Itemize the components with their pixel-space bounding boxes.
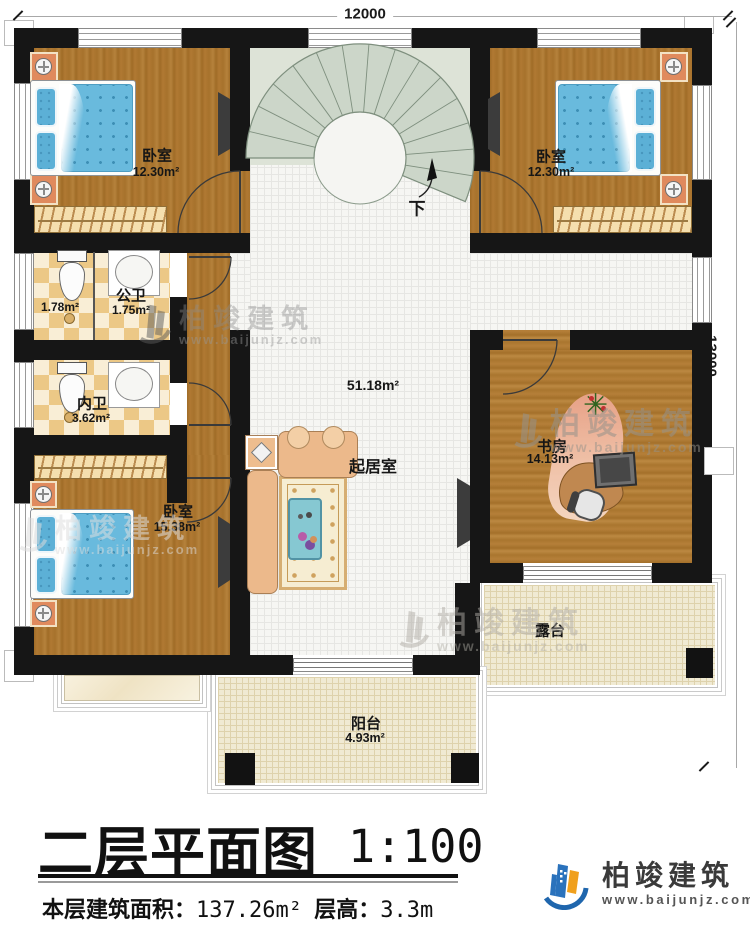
toilet-tank (57, 250, 87, 262)
wall (570, 330, 712, 350)
window (308, 28, 412, 48)
end-table (246, 436, 277, 469)
nightstand (30, 481, 57, 508)
tv-icon (218, 92, 230, 156)
window (537, 28, 641, 48)
column (451, 753, 479, 783)
sink-basin (115, 367, 153, 401)
door-threshold (470, 171, 490, 233)
tv-icon (488, 92, 500, 156)
room-label: 露台 (535, 620, 565, 641)
wall (413, 655, 480, 675)
wardrobe-rod (38, 220, 164, 222)
room-area: 14.13m² (527, 452, 574, 466)
wardrobe-rod (557, 220, 689, 222)
plan-scale: 1:100 (348, 820, 483, 873)
window (692, 257, 712, 323)
nightstand (30, 600, 57, 627)
wall (692, 48, 712, 85)
blanket-fold (606, 84, 632, 172)
nightstand (30, 52, 58, 82)
brand-name: 柏竣建筑 (602, 861, 750, 892)
lamp-icon (35, 605, 52, 622)
wall (14, 340, 187, 360)
wardrobe (553, 206, 692, 233)
computer-monitor-icon (593, 452, 637, 489)
balcony-sliding-door (293, 658, 413, 672)
column (225, 753, 255, 785)
room-area: 12.30m² (133, 165, 180, 179)
monitor-screen (599, 457, 631, 483)
vestibule-floor (187, 253, 230, 480)
nightstand (30, 174, 58, 205)
plant-berry (601, 406, 606, 411)
sofa-pillow (322, 426, 345, 449)
stair-area-background (250, 48, 470, 165)
dimension-tick (726, 17, 737, 28)
pillow (634, 131, 656, 171)
brand-logo-icon (540, 858, 592, 910)
pillow (35, 556, 57, 594)
corridor-floor (470, 253, 490, 330)
floor-area-value: 137.26m² (196, 898, 302, 923)
floor-plan-page: 12000 13000 (0, 0, 750, 930)
room-label: 卧室 (142, 145, 172, 166)
terrace-floor (484, 585, 715, 685)
floor-drain-icon (64, 313, 75, 324)
sink-icon (108, 362, 160, 408)
pillow (35, 131, 57, 171)
room-area: 15.38m² (154, 520, 201, 534)
bay-window (64, 675, 200, 701)
flower-icon (298, 532, 307, 541)
wall (230, 48, 250, 171)
brand-site: www.baijunjz.com (602, 892, 750, 907)
pillow (634, 87, 656, 127)
wall (170, 297, 187, 383)
window (14, 362, 34, 428)
pillow (35, 515, 57, 553)
title-underline-shadow (38, 881, 458, 883)
terrace-sliding-door (523, 566, 652, 580)
floor-area-label: 本层建筑面积： (42, 897, 196, 922)
dimension-width-label: 12000 (337, 6, 393, 23)
wall (641, 28, 712, 48)
right-dimension-line (736, 22, 737, 768)
sofa-pillow (287, 426, 310, 449)
ac-platform (704, 447, 734, 475)
wall (470, 233, 712, 253)
decor-dot (306, 512, 312, 518)
window (14, 253, 34, 330)
stairs-down-label: 下 (409, 195, 426, 220)
room-area: 1.75m² (112, 303, 150, 317)
plant-berry (589, 396, 594, 401)
balcony-floor (218, 677, 476, 783)
plant-icon: ✳ (583, 392, 608, 420)
floor-height-label: 层高： (314, 897, 380, 922)
room-area: 3.62m² (72, 411, 110, 425)
wall (14, 28, 78, 48)
decor-dot (298, 514, 303, 519)
pillow (35, 87, 57, 127)
wardrobe (34, 206, 167, 233)
lamp-icon (35, 58, 52, 75)
wardrobe-rod (38, 467, 164, 469)
room-area: 12.30m² (528, 165, 575, 179)
wall (470, 330, 490, 583)
column (686, 648, 713, 678)
wall (455, 583, 480, 655)
nightstand (660, 174, 688, 205)
toilet-tank (57, 362, 87, 374)
table-lamp-icon (250, 441, 271, 462)
toilet-bowl (59, 262, 85, 301)
corridor-floor (490, 253, 692, 330)
bath-partition (93, 252, 95, 340)
room-label: 起居室 (349, 453, 397, 477)
room-area: 51.18m² (347, 377, 399, 393)
room-label: 卧室 (163, 501, 193, 522)
wall (14, 655, 293, 675)
window (78, 28, 182, 48)
wall (167, 455, 187, 503)
tv-icon (218, 516, 230, 588)
wall (470, 48, 490, 171)
floor-height-value: 3.3m (380, 898, 433, 923)
floor-info-line: 本层建筑面积：137.26m² 层高：3.3m (42, 892, 433, 924)
room-area: 4.93m² (345, 731, 385, 745)
wall (182, 28, 308, 48)
corridor-floor (230, 253, 250, 330)
coffee-table (288, 498, 322, 560)
lamp-icon (665, 181, 682, 198)
wall (652, 563, 712, 583)
brand-logo: 柏竣建筑 www.baijunjz.com (540, 858, 750, 910)
room-area: 1.78m² (41, 300, 79, 314)
dimension-tick (699, 761, 710, 772)
nightstand (660, 52, 688, 82)
lamp-icon (665, 58, 682, 75)
door-threshold (230, 171, 250, 233)
wall (412, 28, 537, 48)
wall (14, 435, 187, 455)
bed (555, 80, 661, 176)
bed (30, 509, 134, 599)
window (692, 85, 712, 180)
door-threshold (503, 330, 570, 350)
lamp-icon (35, 486, 52, 503)
toilet-icon (52, 250, 92, 306)
room-label: 卧室 (536, 146, 566, 167)
title-underline (38, 874, 458, 878)
tv-icon (457, 478, 470, 548)
flower-icon (310, 536, 317, 543)
sofa (247, 470, 278, 594)
wardrobe (34, 455, 167, 479)
lamp-icon (35, 181, 52, 198)
bed (30, 80, 136, 176)
wall (470, 563, 523, 583)
